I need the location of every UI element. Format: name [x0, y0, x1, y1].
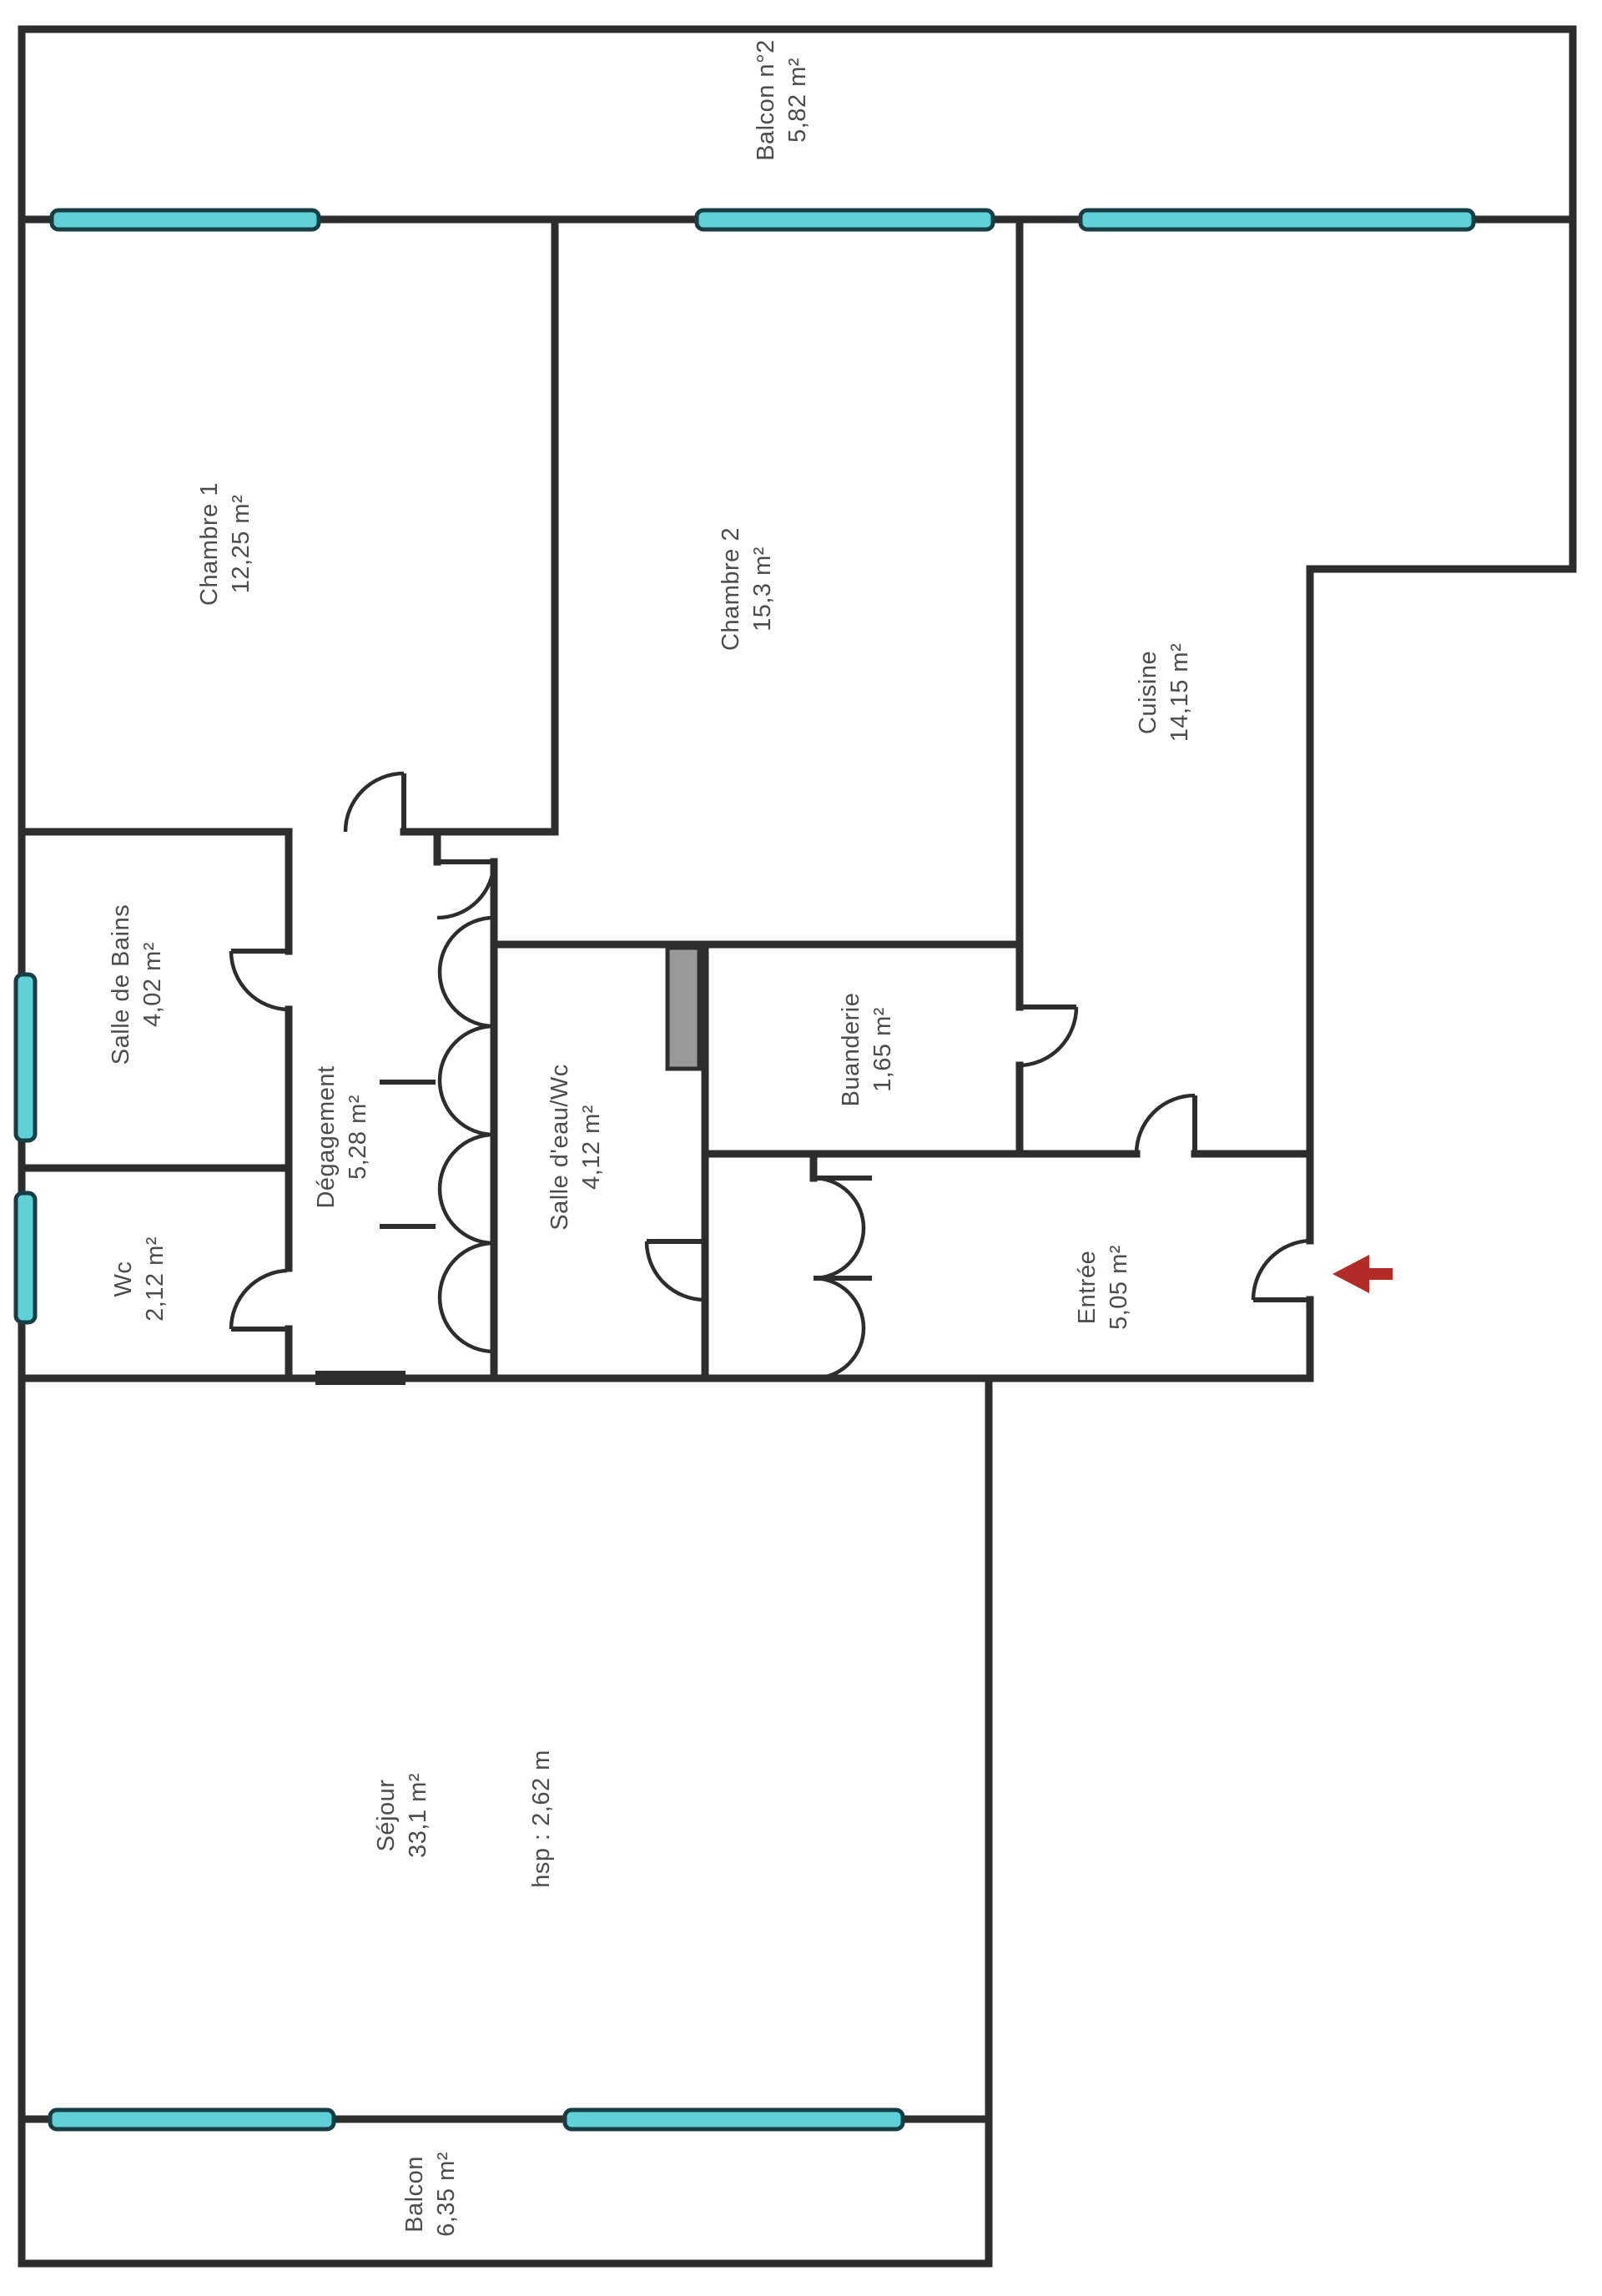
room-label-chambre-1: Chambre 1 12,25 m² — [196, 482, 254, 606]
room-name: Séjour — [373, 1780, 400, 1852]
room-name: Balcon n°2 — [753, 39, 779, 161]
room-area: 4,02 m² — [139, 942, 166, 1027]
room-label-salle-de-bains: Salle de Bains 4,02 m² — [108, 904, 166, 1065]
outer-walls — [22, 29, 1573, 2263]
room-label-balcon-2: Balcon n°2 5,82 m² — [753, 39, 811, 161]
room-area: 2,12 m² — [142, 1236, 169, 1322]
room-label-wc: Wc 2,12 m² — [110, 1236, 169, 1322]
room-label-salle-deau-wc: Salle d'eau/Wc 4,12 m² — [547, 1064, 605, 1231]
room-label-balcon: Balcon 6,35 m² — [401, 2152, 460, 2237]
window-cuisine — [1081, 210, 1474, 229]
room-name: Dégagement — [313, 1065, 340, 1208]
entrance-arrow-head — [1332, 1255, 1369, 1293]
room-area: 1,65 m² — [869, 1007, 896, 1092]
room-name: Chambre 1 — [196, 482, 223, 606]
window-sejour-2 — [565, 2110, 903, 2129]
room-area: 5,82 m² — [784, 58, 811, 143]
room-name: Wc — [110, 1261, 137, 1297]
room-area: 15,3 m² — [749, 546, 776, 632]
room-area: 5,28 m² — [345, 1095, 371, 1180]
room-label-cuisine: Cuisine 14,15 m² — [1135, 643, 1193, 742]
room-label-entree: Entrée 5,05 m² — [1074, 1245, 1132, 1330]
room-label-buanderie: Buanderie 1,65 m² — [838, 993, 896, 1107]
room-area: 5,05 m² — [1106, 1245, 1132, 1330]
room-area: 6,35 m² — [433, 2152, 460, 2237]
floor-plan-drawing: Balcon n°2 5,82 m² Chambre 1 12,25 m² Ch… — [0, 0, 1602, 2296]
room-name: Entrée — [1074, 1251, 1101, 1324]
floor-plan-page: Balcon n°2 5,82 m² Chambre 1 12,25 m² Ch… — [0, 0, 1602, 2296]
room-name: Balcon — [401, 2156, 428, 2233]
interior-walls — [22, 219, 1310, 1378]
room-label-degagement: Dégagement 5,28 m² — [313, 1065, 371, 1208]
room-area: 14,15 m² — [1166, 643, 1193, 742]
duct-block — [667, 948, 699, 1069]
room-name: Buanderie — [838, 993, 864, 1107]
window-chambre1 — [52, 210, 319, 229]
window-sejour-1 — [50, 2110, 334, 2129]
room-name: Salle d'eau/Wc — [547, 1064, 573, 1231]
threshold-bar — [315, 1371, 406, 1385]
room-label-chambre-2: Chambre 2 15,3 m² — [718, 527, 776, 651]
room-label-sejour: Séjour 33,1 m² — [373, 1773, 431, 1858]
room-area: 4,12 m² — [578, 1105, 605, 1190]
door-arcs-group — [231, 773, 1310, 1378]
walls-group — [22, 29, 1573, 2263]
door-swing-arcs — [231, 773, 1310, 1378]
window-chambre2 — [697, 210, 993, 229]
window-wc — [16, 1193, 35, 1322]
room-area: 33,1 m² — [405, 1773, 431, 1858]
room-name: Salle de Bains — [108, 904, 134, 1065]
entrance-arrow — [1332, 1255, 1393, 1293]
ceiling-height-text: hsp : 2,62 m — [528, 1750, 555, 1888]
door-leaves-group — [231, 773, 1310, 1329]
room-area: 12,25 m² — [228, 495, 254, 593]
window-salle-de-bains — [16, 974, 35, 1140]
entrance-arrow-tail — [1369, 1268, 1393, 1280]
room-name: Cuisine — [1135, 651, 1161, 734]
room-name: Chambre 2 — [718, 527, 744, 651]
ceiling-height-note: hsp : 2,62 m — [528, 1750, 555, 1888]
door-leaves — [231, 773, 1310, 1329]
